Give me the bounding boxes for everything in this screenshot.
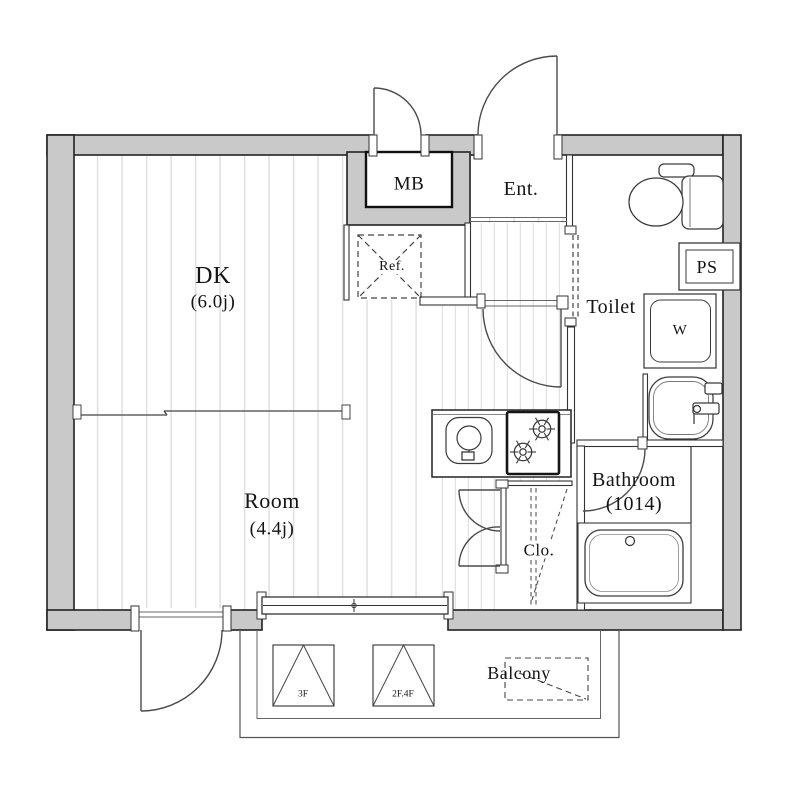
room-label-pipe-shaft: PS [696, 258, 717, 276]
room-label-dk: DK [195, 264, 231, 288]
stove-burners-icon [507, 412, 559, 474]
room-size-dk: (6.0j) [191, 293, 236, 312]
balcony-door [141, 630, 222, 711]
window-sliding [262, 597, 448, 614]
entrance-door [478, 56, 557, 135]
room-size-bathroom: (1014) [606, 494, 662, 514]
floor-plan-drawing [0, 0, 800, 788]
washbasin-icon [649, 377, 722, 439]
room-size-room: (4.4j) [250, 520, 295, 539]
room-label-meter-box: MB [394, 175, 425, 194]
stair-marker-3f: 3F [295, 690, 311, 700]
balcony-outline [240, 630, 619, 738]
room-label-room: Room [244, 490, 300, 512]
room-label-washer: W [673, 324, 688, 339]
room-label-bathroom: Bathroom [592, 470, 676, 490]
floor-stripes [74, 155, 570, 610]
floor-plan: DK (6.0j) Room (4.4j) MB Ent. Toilet PS … [0, 0, 800, 788]
label-refrigerator: Ref. [376, 260, 408, 274]
accordion-door [573, 235, 578, 317]
room-label-balcony: Balcony [487, 664, 551, 682]
room-label-closet: Clo. [521, 542, 558, 559]
mb-door [374, 88, 421, 135]
closet-door-frame [501, 487, 506, 568]
room-label-entrance: Ent. [504, 179, 539, 199]
room-label-toilet: Toilet [586, 297, 635, 317]
toilet-icon [629, 164, 723, 229]
stair-marker-2f4f: 2F.4F [389, 690, 417, 700]
kitchen-sink-icon [446, 418, 492, 464]
